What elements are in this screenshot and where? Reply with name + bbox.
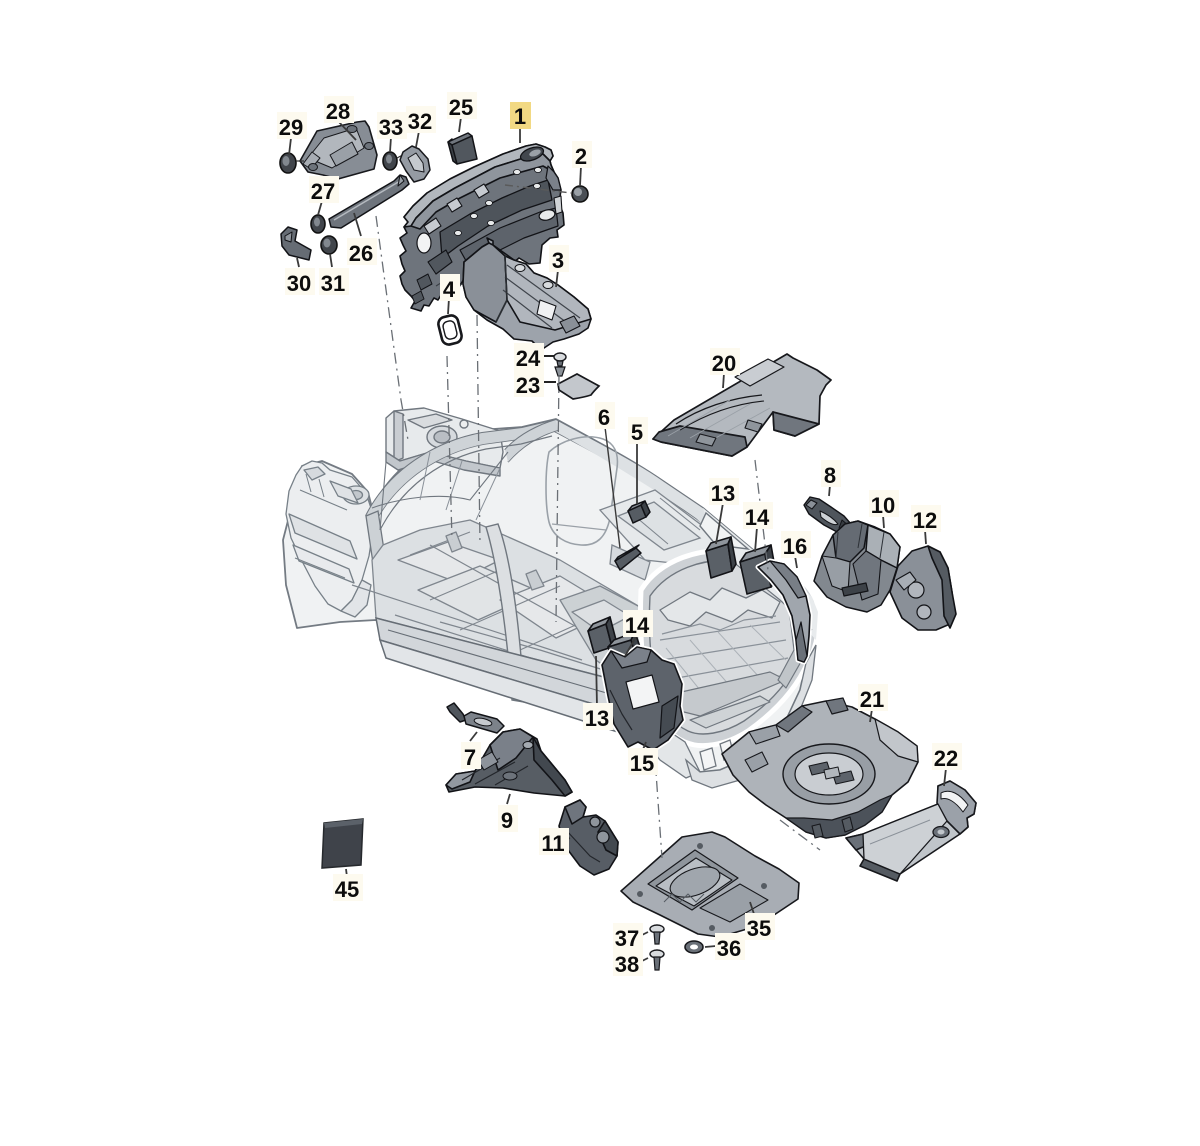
svg-text:36: 36 [717,936,741,961]
svg-text:13: 13 [711,481,735,506]
svg-text:16: 16 [783,534,807,559]
svg-text:12: 12 [913,508,937,533]
svg-text:25: 25 [449,95,473,120]
svg-text:14: 14 [625,613,650,638]
svg-text:3: 3 [552,248,564,273]
svg-text:33: 33 [379,115,403,140]
svg-text:35: 35 [747,916,771,941]
svg-text:30: 30 [287,271,311,296]
svg-text:4: 4 [443,277,456,302]
svg-text:13: 13 [585,706,609,731]
svg-text:31: 31 [321,271,345,296]
svg-text:11: 11 [541,831,564,856]
svg-text:38: 38 [615,952,639,977]
svg-text:45: 45 [335,877,359,902]
svg-text:9: 9 [501,808,513,833]
svg-text:15: 15 [630,751,654,776]
svg-text:14: 14 [745,505,770,530]
svg-text:28: 28 [326,99,350,124]
svg-text:8: 8 [824,463,836,488]
svg-text:7: 7 [464,745,476,770]
svg-text:22: 22 [934,746,958,771]
svg-text:20: 20 [712,351,736,376]
svg-text:2: 2 [575,144,587,169]
svg-text:10: 10 [871,493,895,518]
svg-text:24: 24 [516,346,541,371]
svg-text:21: 21 [860,687,884,712]
svg-text:26: 26 [349,241,373,266]
svg-text:23: 23 [516,373,540,398]
svg-text:32: 32 [408,109,432,134]
svg-text:37: 37 [615,926,639,951]
svg-text:1: 1 [514,104,526,129]
svg-text:27: 27 [311,179,335,204]
svg-text:29: 29 [279,115,303,140]
svg-text:6: 6 [598,405,610,430]
svg-text:5: 5 [631,420,643,445]
